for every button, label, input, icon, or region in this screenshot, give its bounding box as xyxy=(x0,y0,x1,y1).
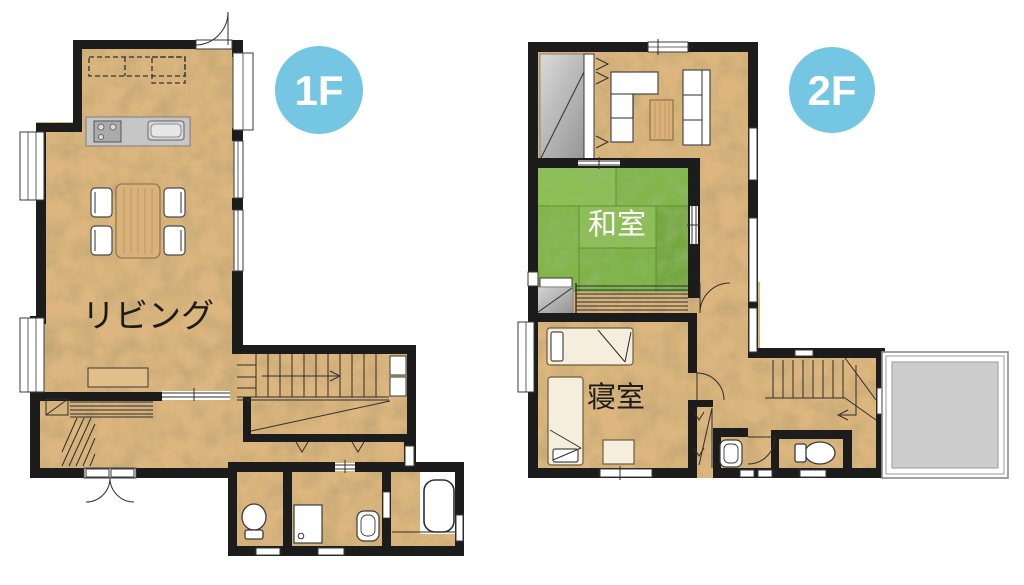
bedroom-label: 寝室 xyxy=(587,380,645,414)
window xyxy=(749,308,757,352)
window xyxy=(749,218,757,302)
window xyxy=(518,322,534,392)
window xyxy=(234,210,243,271)
window xyxy=(456,515,463,541)
chair xyxy=(91,188,112,217)
toilet-room-1f xyxy=(242,504,266,539)
low-table xyxy=(650,100,673,140)
window xyxy=(234,141,243,198)
kitchen-sink-icon xyxy=(148,121,184,140)
floor-plan-canvas: リビング xyxy=(0,0,1024,585)
chair xyxy=(164,226,185,255)
entry-door-top xyxy=(195,12,232,49)
window xyxy=(20,132,44,200)
balcony xyxy=(882,352,1008,478)
floor-plan-1f: リビング xyxy=(20,12,464,556)
japanese-room-label: 和室 xyxy=(588,207,646,241)
washbasin-icon xyxy=(357,511,379,541)
bed xyxy=(548,377,583,465)
floor-badge-2f: 2F xyxy=(789,47,875,133)
tv-board xyxy=(88,368,148,387)
window xyxy=(795,350,813,356)
floor-badge-1f: 1F xyxy=(275,46,363,134)
window xyxy=(740,470,754,477)
window xyxy=(749,128,757,180)
sliding-door xyxy=(383,492,390,518)
sofa xyxy=(683,70,710,145)
badge-text: 1F xyxy=(294,67,343,114)
chair xyxy=(164,188,185,217)
kitchen-counter xyxy=(86,117,190,146)
window xyxy=(233,53,253,130)
floor-plan-2f: 和室 寝室 xyxy=(518,39,1008,480)
bed xyxy=(547,328,633,365)
chair xyxy=(91,226,112,255)
washbasin-icon xyxy=(720,440,742,467)
living-room-label: リビング xyxy=(82,296,214,335)
stove-icon xyxy=(94,121,121,142)
badge-text: 2F xyxy=(807,67,856,114)
window xyxy=(256,548,280,555)
bathtub-icon xyxy=(424,480,454,532)
window xyxy=(528,272,538,286)
dining-table xyxy=(116,184,160,258)
window xyxy=(318,548,344,555)
toilet-icon xyxy=(242,504,266,539)
desk xyxy=(603,440,634,464)
window xyxy=(800,470,826,477)
floor-plan-drawing: リビング xyxy=(0,0,1024,585)
window xyxy=(20,318,44,392)
window xyxy=(758,470,772,477)
window xyxy=(405,446,414,466)
entrance-door xyxy=(84,468,136,502)
toilet-icon xyxy=(795,442,835,464)
washing-machine-icon xyxy=(294,505,322,543)
